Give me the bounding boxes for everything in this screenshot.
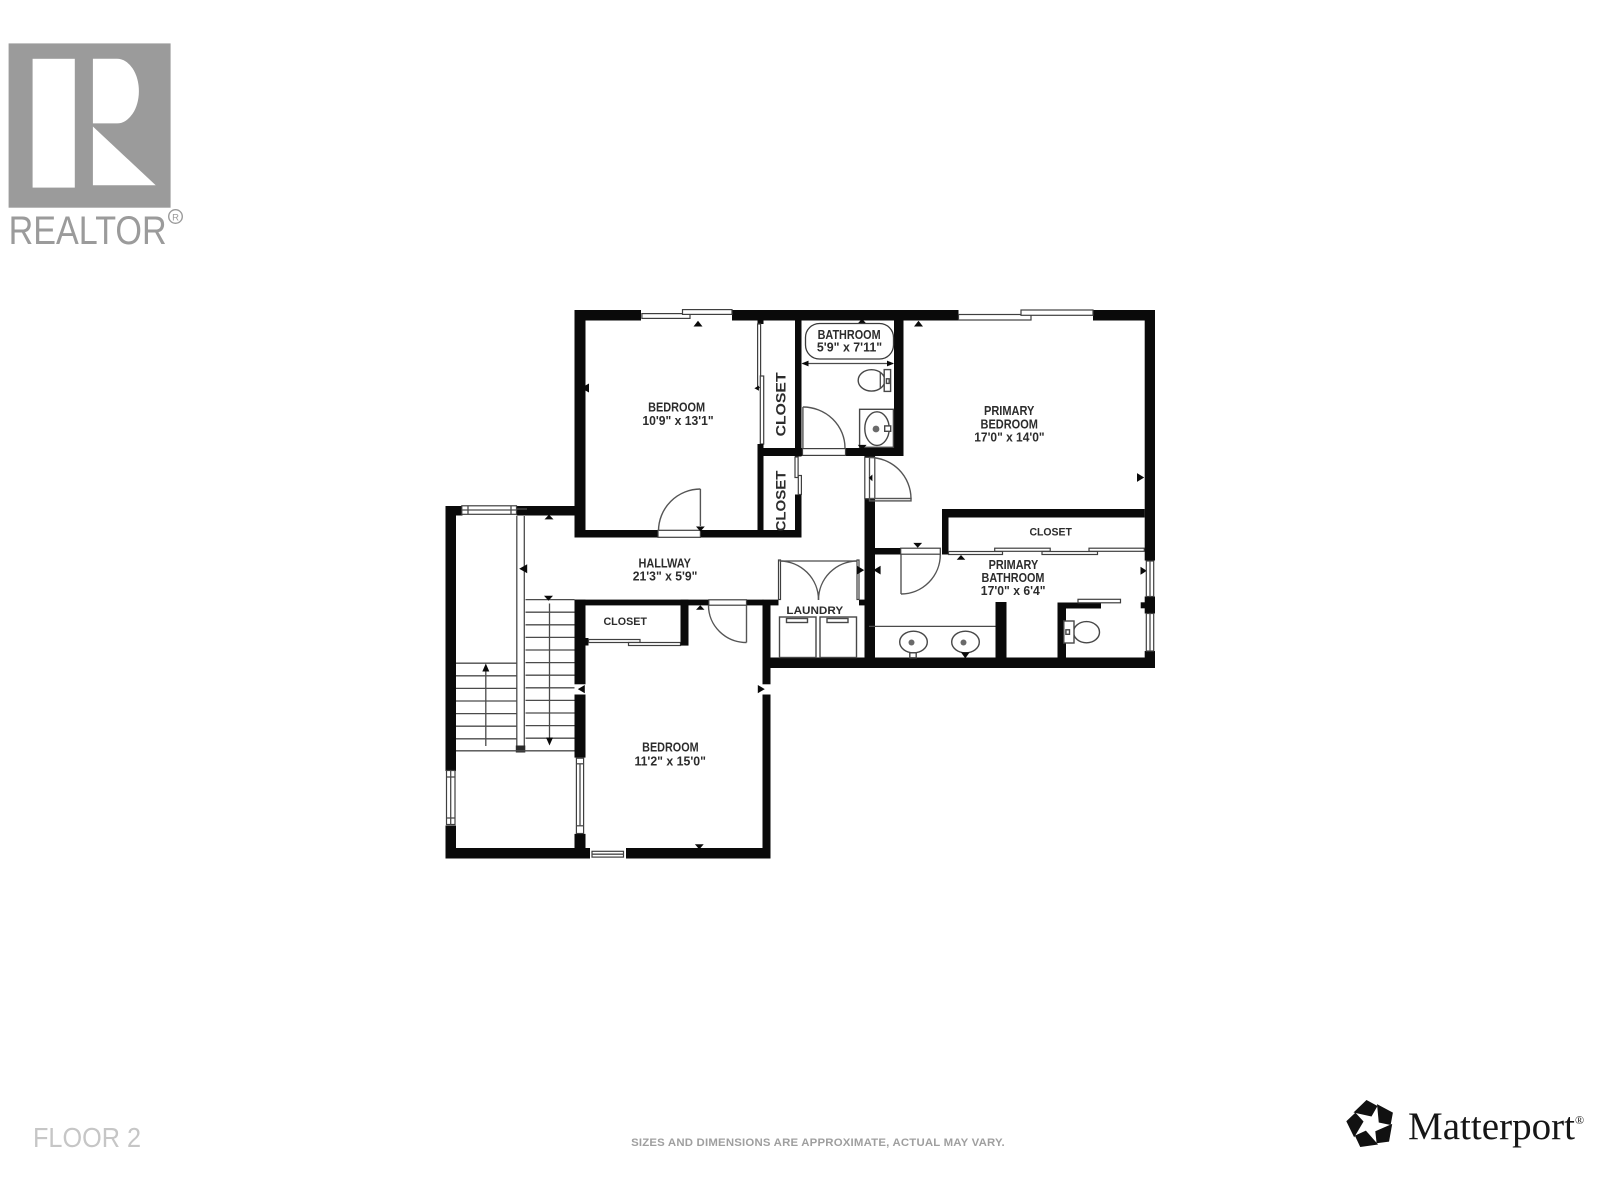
svg-text:CLOSET: CLOSET bbox=[603, 616, 647, 628]
svg-text:REALTOR: REALTOR bbox=[9, 209, 167, 253]
svg-text:CLOSET: CLOSET bbox=[772, 372, 788, 437]
svg-text:5'9" x 7'11": 5'9" x 7'11" bbox=[817, 340, 882, 355]
svg-text:CLOSET: CLOSET bbox=[772, 470, 788, 531]
svg-text:10'9" x 13'1": 10'9" x 13'1" bbox=[642, 413, 713, 428]
svg-text:FLOOR 2: FLOOR 2 bbox=[33, 1122, 141, 1153]
svg-text:SIZES AND DIMENSIONS ARE APPRO: SIZES AND DIMENSIONS ARE APPROXIMATE, AC… bbox=[631, 1137, 1005, 1149]
svg-text:LAUNDRY: LAUNDRY bbox=[786, 605, 843, 617]
svg-text:17'0" x 14'0": 17'0" x 14'0" bbox=[974, 430, 1044, 445]
svg-text:CLOSET: CLOSET bbox=[1029, 527, 1072, 539]
svg-text:17'0" x 6'4": 17'0" x 6'4" bbox=[981, 583, 1046, 598]
svg-text:Matterport: Matterport bbox=[1408, 1105, 1575, 1148]
svg-text:BEDROOM: BEDROOM bbox=[642, 740, 699, 755]
svg-text:21'3" x 5'9": 21'3" x 5'9" bbox=[633, 569, 698, 584]
svg-text:11'2" x 15'0": 11'2" x 15'0" bbox=[634, 754, 706, 769]
svg-text:®: ® bbox=[1575, 1113, 1584, 1127]
svg-text:R: R bbox=[172, 213, 179, 224]
